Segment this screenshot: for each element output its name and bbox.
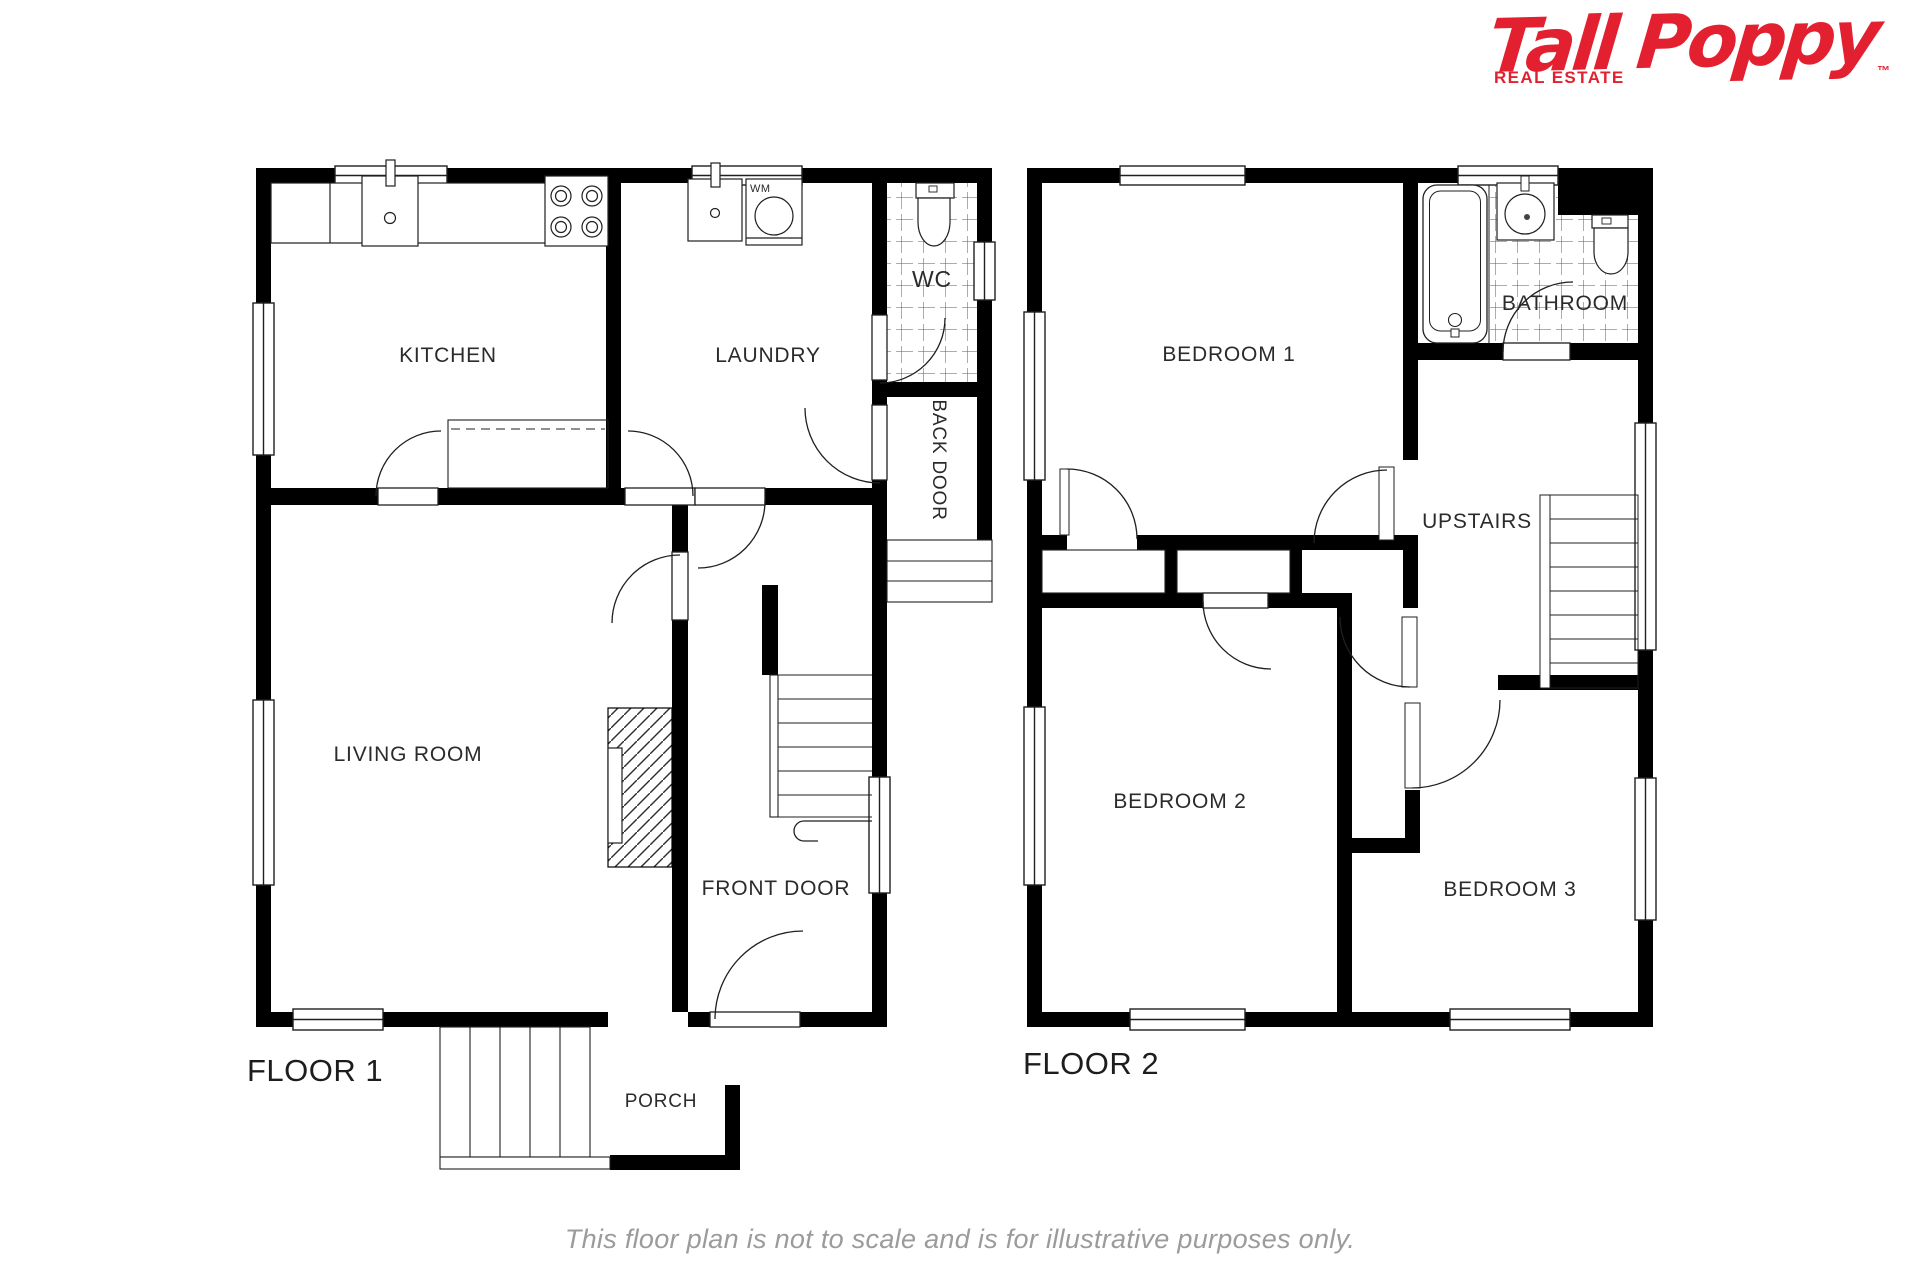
wall-segment: [872, 505, 887, 777]
wall-segment: [872, 168, 887, 315]
window: [1635, 778, 1656, 920]
room-label-back-door: BACK DOOR: [928, 399, 949, 520]
door-front: [710, 931, 803, 1027]
wall-segment: [672, 505, 688, 552]
door-bedroom1-hall: [1060, 469, 1137, 539]
wall-segment: [610, 1155, 740, 1170]
door-living-room: [612, 552, 688, 623]
disclaimer-text: This floor plan is not to scale and is f…: [0, 1224, 1920, 1255]
brand-name: Tall Poppy: [1484, 0, 1880, 87]
room-label-wc: WC: [912, 266, 952, 292]
room-label-bathroom: BATHROOM: [1502, 292, 1628, 315]
door-laundry: [625, 431, 695, 505]
floorplan-page: WM: [0, 0, 1920, 1280]
window: [253, 303, 274, 455]
room-label-upstairs: UPSTAIRS: [1422, 510, 1532, 533]
room-label-living-room: LIVING ROOM: [334, 743, 483, 766]
stove: [545, 176, 608, 246]
wall-segment: [1337, 838, 1420, 853]
window: [1450, 1009, 1570, 1030]
floor-plan-canvas: WM: [0, 0, 1920, 1280]
staircase-floor1: [770, 675, 872, 841]
door-bedroom3: [1405, 700, 1500, 788]
wall-segment: [1268, 593, 1337, 608]
room-label-bedroom3: BEDROOM 3: [1443, 878, 1576, 901]
wall-segment: [1403, 168, 1418, 460]
floor2-plan: BEDROOM 1 BATHROOM UPSTAIRS BEDROOM 2 BE…: [1023, 166, 1656, 1081]
floor2-title: FLOOR 2: [1023, 1046, 1159, 1081]
chimney-block: [1558, 183, 1638, 215]
door-kitchen: [376, 431, 441, 505]
window: [869, 777, 890, 893]
wall-segment: [1290, 550, 1302, 608]
wall-segment: [1337, 593, 1352, 1027]
wall-segment: [1137, 535, 1418, 550]
window: [1024, 312, 1045, 480]
wall-segment: [438, 488, 625, 505]
wall-segment: [1403, 540, 1418, 608]
floor1-doors: [376, 315, 945, 1027]
room-label-bedroom2: BEDROOM 2: [1113, 790, 1246, 813]
room-label-front-door: FRONT DOOR: [702, 877, 851, 900]
washing-machine-label: WM: [750, 183, 771, 195]
wall-segment: [800, 1012, 887, 1027]
wall-segment: [1570, 343, 1638, 360]
wall-segment: [688, 1012, 710, 1027]
wall-segment: [887, 382, 992, 397]
staircase-floor2: [1540, 495, 1638, 688]
wall-segment: [762, 585, 778, 675]
wall-segment: [977, 168, 992, 540]
wall-segment: [872, 893, 887, 1027]
wall-segment: [1027, 168, 1042, 1027]
window: [1458, 166, 1558, 185]
wall-segment: [1405, 790, 1420, 838]
door-bedroom2: [1203, 593, 1271, 669]
back-door-steps: [887, 540, 992, 602]
wall-segment: [256, 168, 271, 1027]
door-back: [805, 405, 887, 483]
wall-segment: [725, 1085, 740, 1155]
wall-segment: [1042, 535, 1067, 550]
trademark-symbol: ™: [1877, 63, 1890, 78]
window: [293, 1009, 383, 1030]
stair-handrail: [794, 821, 872, 841]
window: [974, 242, 995, 300]
door-landing-bedroom1: [1314, 467, 1394, 543]
floor1-title: FLOOR 1: [247, 1053, 383, 1088]
wall-segment: [765, 488, 887, 505]
floor1-plan: WM: [247, 160, 995, 1170]
wall-segment: [872, 380, 887, 405]
room-label-laundry: LAUNDRY: [715, 344, 821, 367]
room-label-bedroom1: BEDROOM 1: [1162, 343, 1295, 366]
closet: [1177, 550, 1290, 593]
window: [1120, 166, 1245, 185]
door-hallway: [695, 488, 765, 568]
bathroom-sink: [1497, 176, 1554, 240]
wall-segment: [1418, 343, 1503, 360]
floor1-labels: KITCHEN LAUNDRY WC BACK DOOR LIVING ROOM…: [247, 266, 952, 1112]
window: [1130, 1009, 1245, 1030]
wall-segment: [1042, 593, 1203, 608]
window: [253, 700, 274, 885]
fireplace: [608, 708, 672, 867]
bathroom-toilet: [1592, 215, 1628, 274]
room-label-kitchen: KITCHEN: [399, 344, 497, 367]
kitchen-cabinet-dashed: [448, 420, 608, 488]
closet: [1042, 550, 1165, 593]
window: [1024, 707, 1045, 885]
bathtub: [1423, 185, 1487, 343]
porch-steps: [440, 1027, 610, 1169]
wall-segment: [672, 620, 688, 1012]
room-label-porch: PORCH: [625, 1091, 698, 1112]
wall-segment: [1165, 550, 1177, 608]
tall-poppy-logo: Tall Poppy™ REAL ESTATE: [1450, 4, 1890, 88]
wall-segment: [256, 488, 378, 505]
